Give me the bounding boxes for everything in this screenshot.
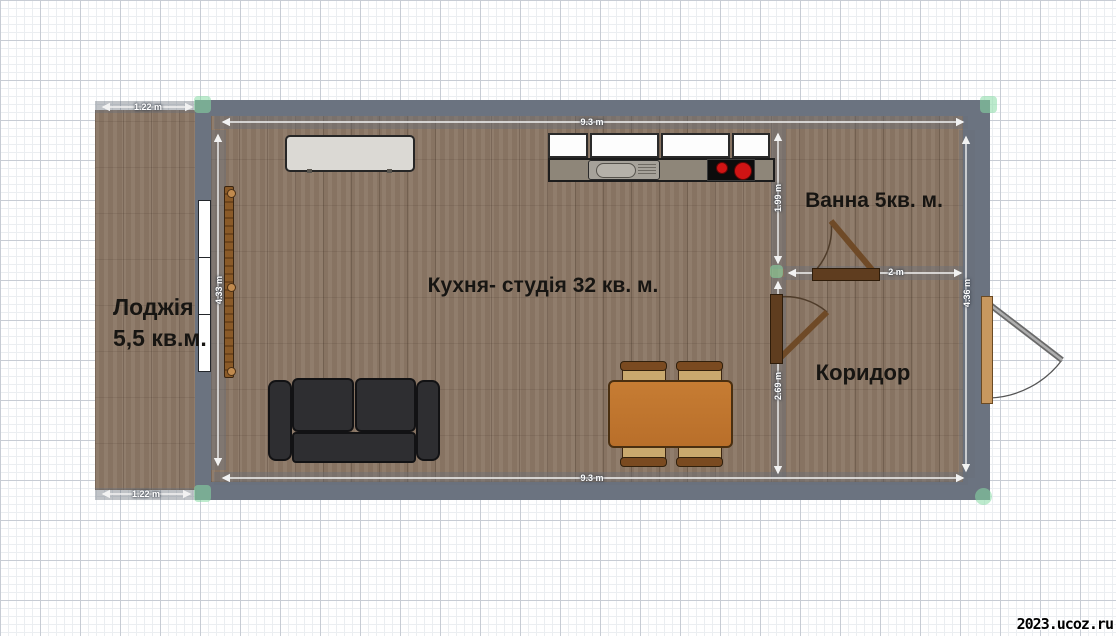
dim-room-bottom: 9.3 m: [580, 473, 603, 483]
watermark: 2023.ucoz.ru: [1017, 615, 1113, 633]
dim-room-left: 4.33 m: [214, 276, 224, 304]
dim-room-top: 9.3 m: [580, 117, 603, 127]
dim-corridor-height: 2.69 m: [773, 372, 783, 400]
dim-loggia-top: 1.22 m: [134, 102, 162, 112]
label-loggia-line2: 5,5 кв.м.: [113, 323, 207, 354]
wall-corner-handle-bottom-left[interactable]: [194, 485, 211, 502]
wall-junction-handle[interactable]: [770, 265, 783, 278]
dim-bathroom-height: 1.99 m: [773, 184, 783, 212]
corridor-door[interactable]: [770, 294, 783, 364]
label-loggia-line1: Лоджія: [113, 292, 207, 323]
entrance-door-frame[interactable]: [981, 296, 993, 404]
label-kitchen: Кухня- студія 32 кв. м.: [428, 274, 659, 298]
dim-loggia-bottom: 1.22 m: [132, 489, 160, 499]
wall-corner-handle-bottom-right[interactable]: [975, 488, 992, 505]
dim-bathroom-width: 2 m: [888, 267, 904, 277]
label-loggia: Лоджія 5,5 кв.м.: [113, 292, 207, 354]
label-corridor: Коридор: [816, 360, 911, 386]
dim-room-right: 4.36 m: [962, 279, 972, 307]
bathroom-door[interactable]: [812, 268, 880, 281]
wall-corner-handle-top-right[interactable]: [980, 96, 997, 113]
floor-plan-canvas: 1.22 m 1.22 m 9.3 m 9.3 m 4.33 m 4.36 m …: [0, 0, 1116, 636]
label-bathroom: Ванна 5кв. м.: [805, 189, 943, 213]
wall-corner-handle-top-left[interactable]: [194, 96, 211, 113]
dimension-lines: [103, 107, 966, 494]
